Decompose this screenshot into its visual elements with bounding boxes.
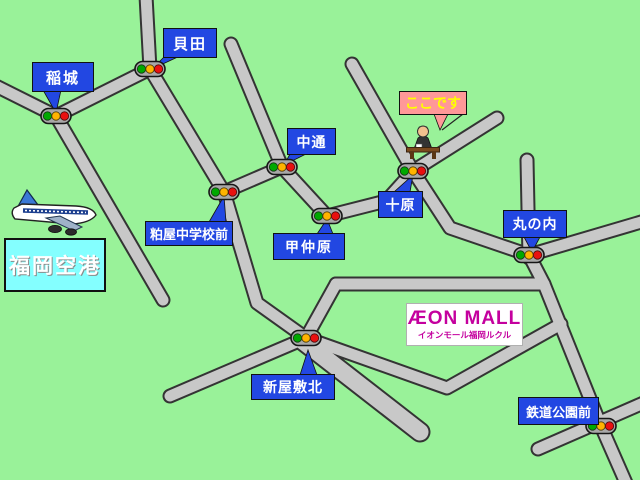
- place-label-marunouchi: 丸の内: [503, 210, 567, 238]
- traffic-light-icon: [135, 62, 165, 77]
- aeon-mall-logo: ÆON MALL イオンモール福岡ルクル: [406, 303, 523, 346]
- route-map: 稲城 貝田 中通 十原 甲仲原 粕屋中学校前 丸の内 新屋敷北 鉄道公園前 ここ…: [0, 0, 640, 480]
- place-label-text: 新屋敷北: [263, 377, 323, 397]
- place-label-tetsudo-koen-mae: 鉄道公園前: [518, 397, 599, 425]
- place-label-kasuya-chugakko-mae: 粕屋中学校前: [145, 221, 233, 246]
- person-at-desk-icon: [407, 126, 440, 159]
- place-label-kounakabaru: 甲仲原: [273, 233, 345, 260]
- place-label-text: 丸の内: [513, 214, 558, 234]
- place-label-juubara: 十原: [378, 191, 423, 218]
- here-callout: ここです: [399, 91, 467, 115]
- place-label-text: 中通: [297, 132, 327, 152]
- place-label-text: 甲仲原: [285, 237, 333, 257]
- traffic-light-icon: [209, 185, 239, 200]
- traffic-light-icon: [514, 248, 544, 263]
- airport-label-text: 福岡空港: [9, 250, 101, 280]
- traffic-light-icon: [41, 109, 71, 124]
- aeon-mall-subtitle: イオンモール福岡ルクル: [418, 331, 511, 340]
- place-label-inagi: 稲城: [32, 62, 94, 92]
- traffic-light-icon: [267, 160, 297, 175]
- place-label-text: 鉄道公園前: [526, 402, 591, 421]
- place-label-text: 粕屋中学校前: [150, 224, 228, 243]
- place-label-nakadori: 中通: [287, 128, 336, 155]
- aeon-mall-logo-text: ÆON MALL: [408, 309, 522, 328]
- here-callout-text: ここです: [405, 93, 461, 113]
- airplane-icon: [12, 190, 96, 235]
- place-label-text: 稲城: [46, 67, 80, 88]
- place-label-kaida: 貝田: [163, 28, 217, 58]
- place-label-text: 貝田: [173, 33, 207, 54]
- place-label-text: 十原: [386, 195, 416, 215]
- airport-label: 福岡空港: [4, 238, 106, 292]
- place-label-shinyashiki-kita: 新屋敷北: [251, 374, 335, 400]
- traffic-light-icon: [398, 164, 428, 179]
- traffic-light-icon: [291, 331, 321, 346]
- traffic-light-icon: [312, 209, 342, 224]
